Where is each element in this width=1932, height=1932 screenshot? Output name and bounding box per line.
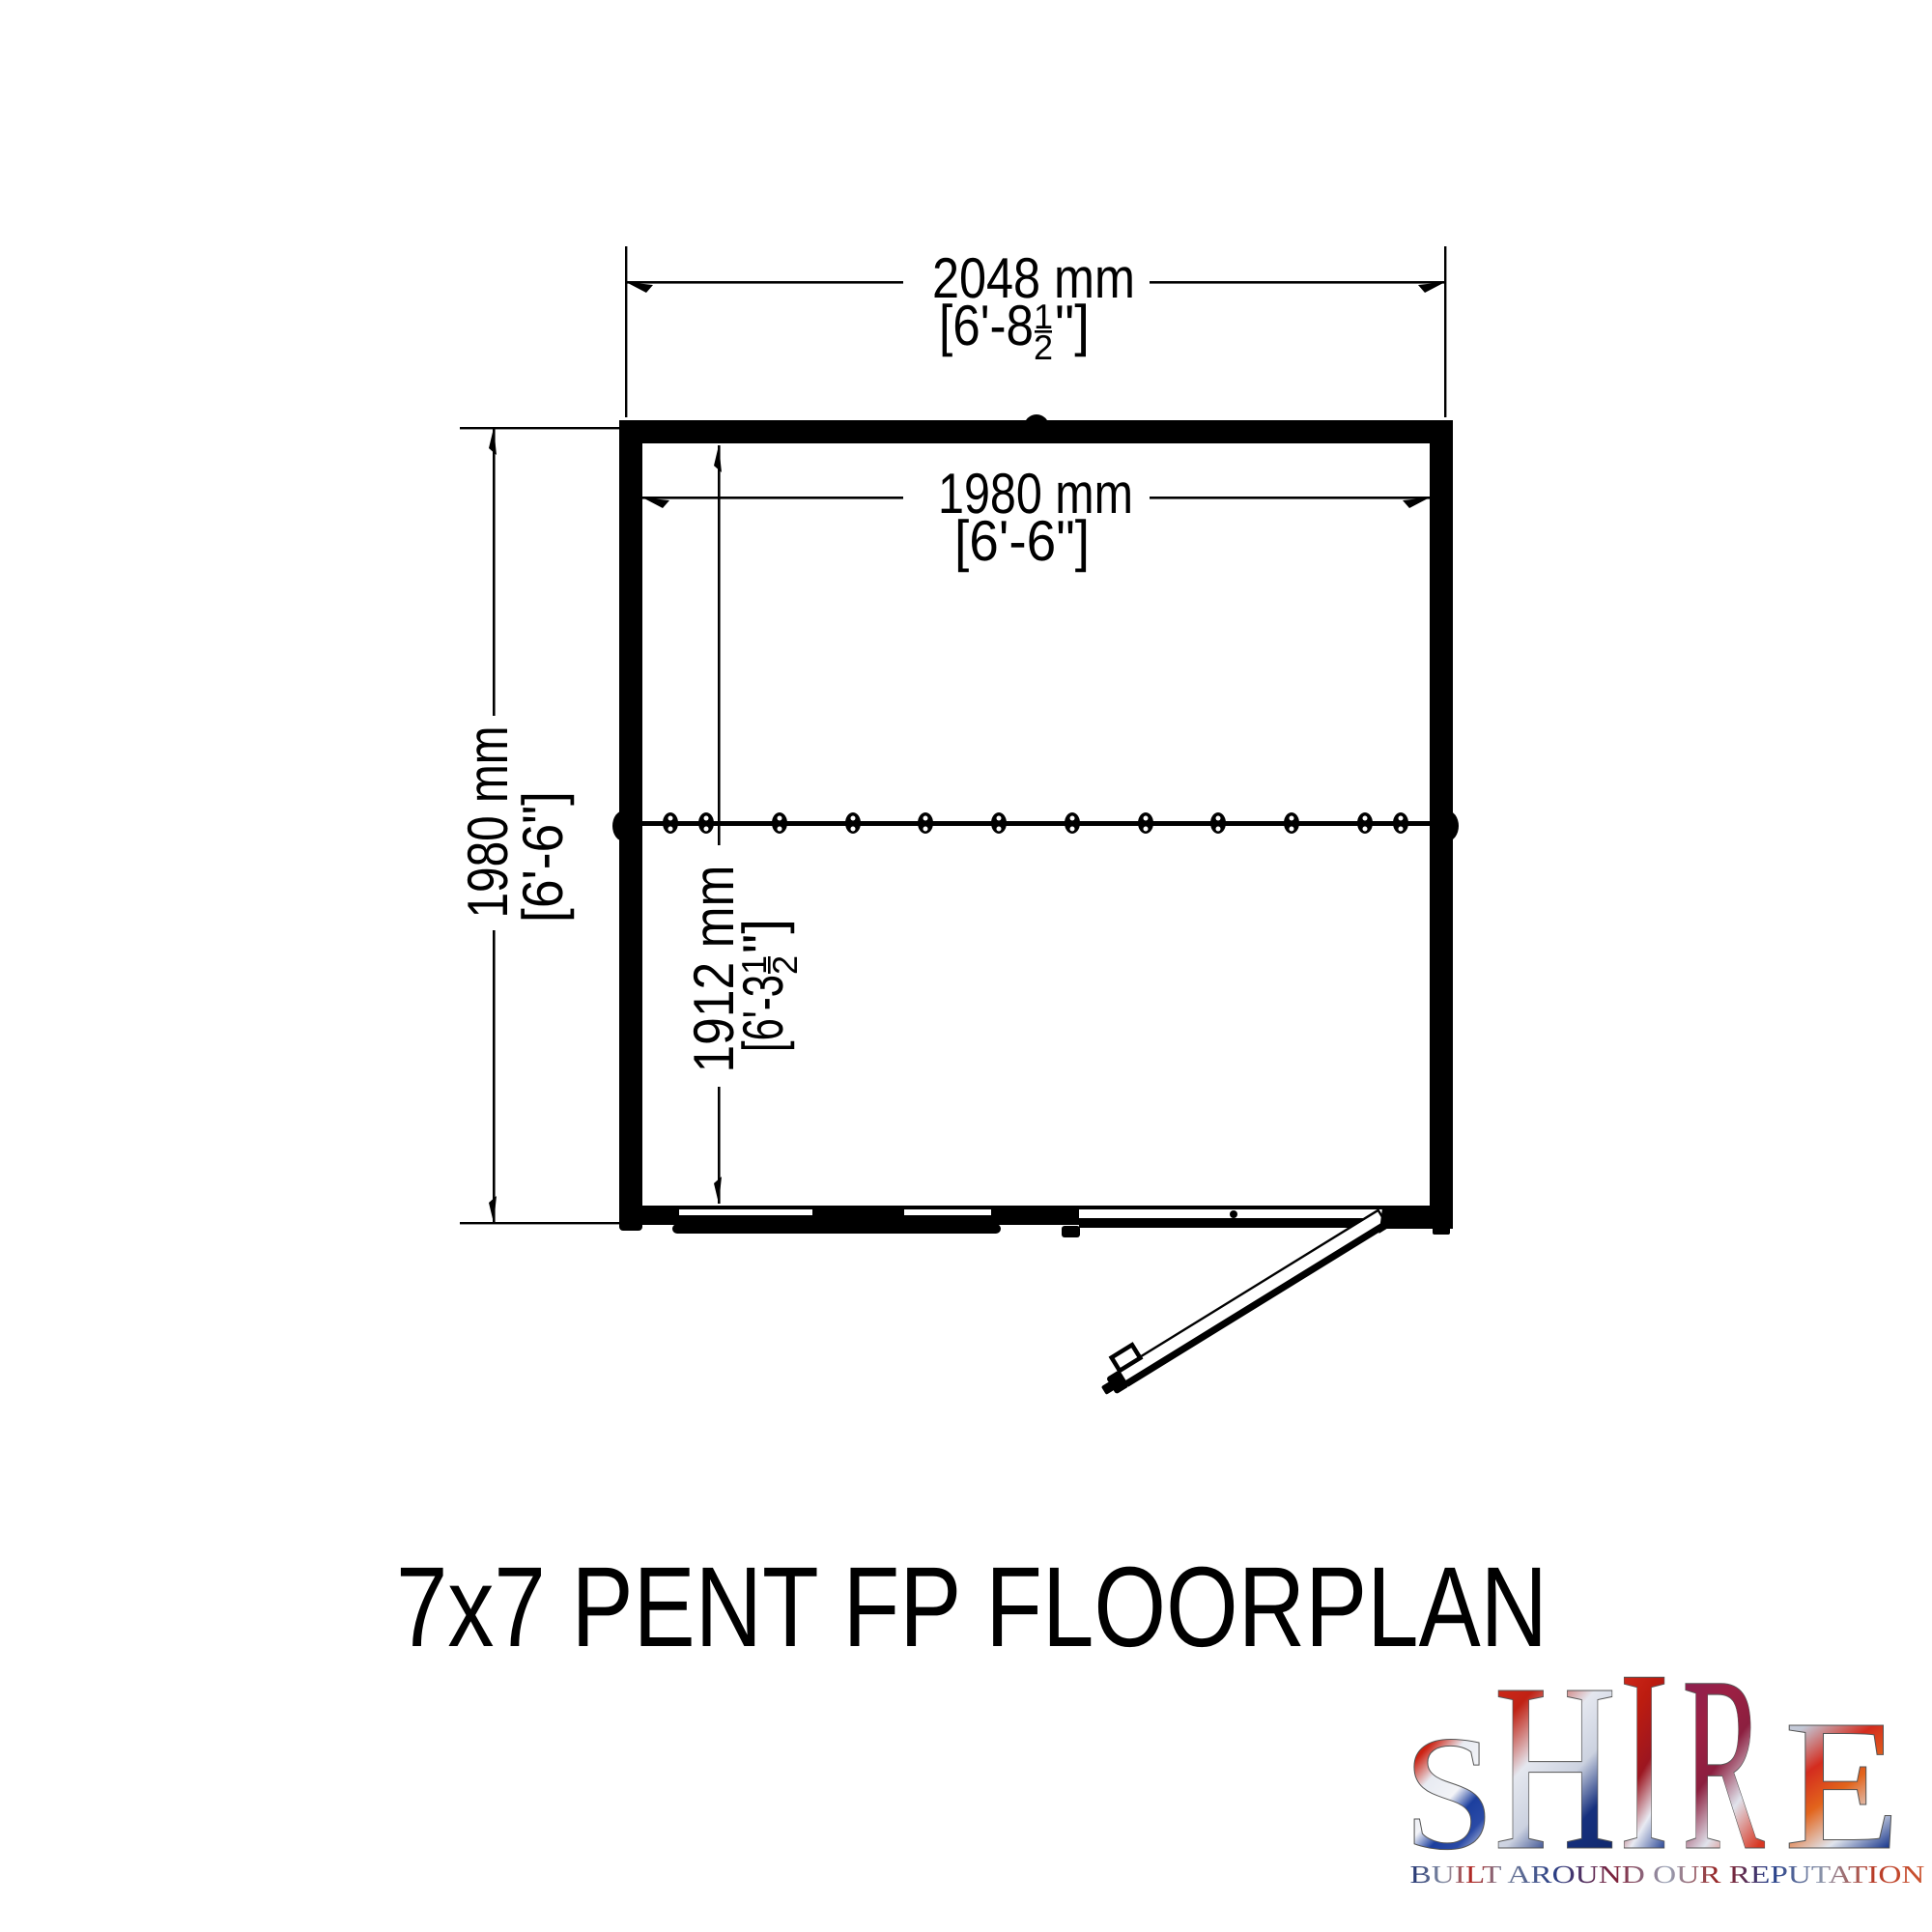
svg-text:"]: "] bbox=[731, 919, 795, 953]
svg-text:[6'-6"]: [6'-6"] bbox=[511, 791, 575, 923]
svg-text:[6'-6"]: [6'-6"] bbox=[954, 509, 1090, 573]
svg-text:[6'-3: [6'-3 bbox=[731, 975, 795, 1052]
svg-text:[6'-8: [6'-8 bbox=[939, 294, 1034, 357]
svg-text:"]: "] bbox=[1055, 294, 1090, 357]
svg-text:BUILT AROUND OUR REPUTATION: BUILT AROUND OUR REPUTATION bbox=[1410, 1861, 1925, 1889]
svg-text:7x7 PENT FP FLOORPLAN: 7x7 PENT FP FLOORPLAN bbox=[396, 1544, 1548, 1671]
svg-text:E: E bbox=[1784, 1681, 1901, 1889]
svg-text:S: S bbox=[1404, 1702, 1495, 1884]
